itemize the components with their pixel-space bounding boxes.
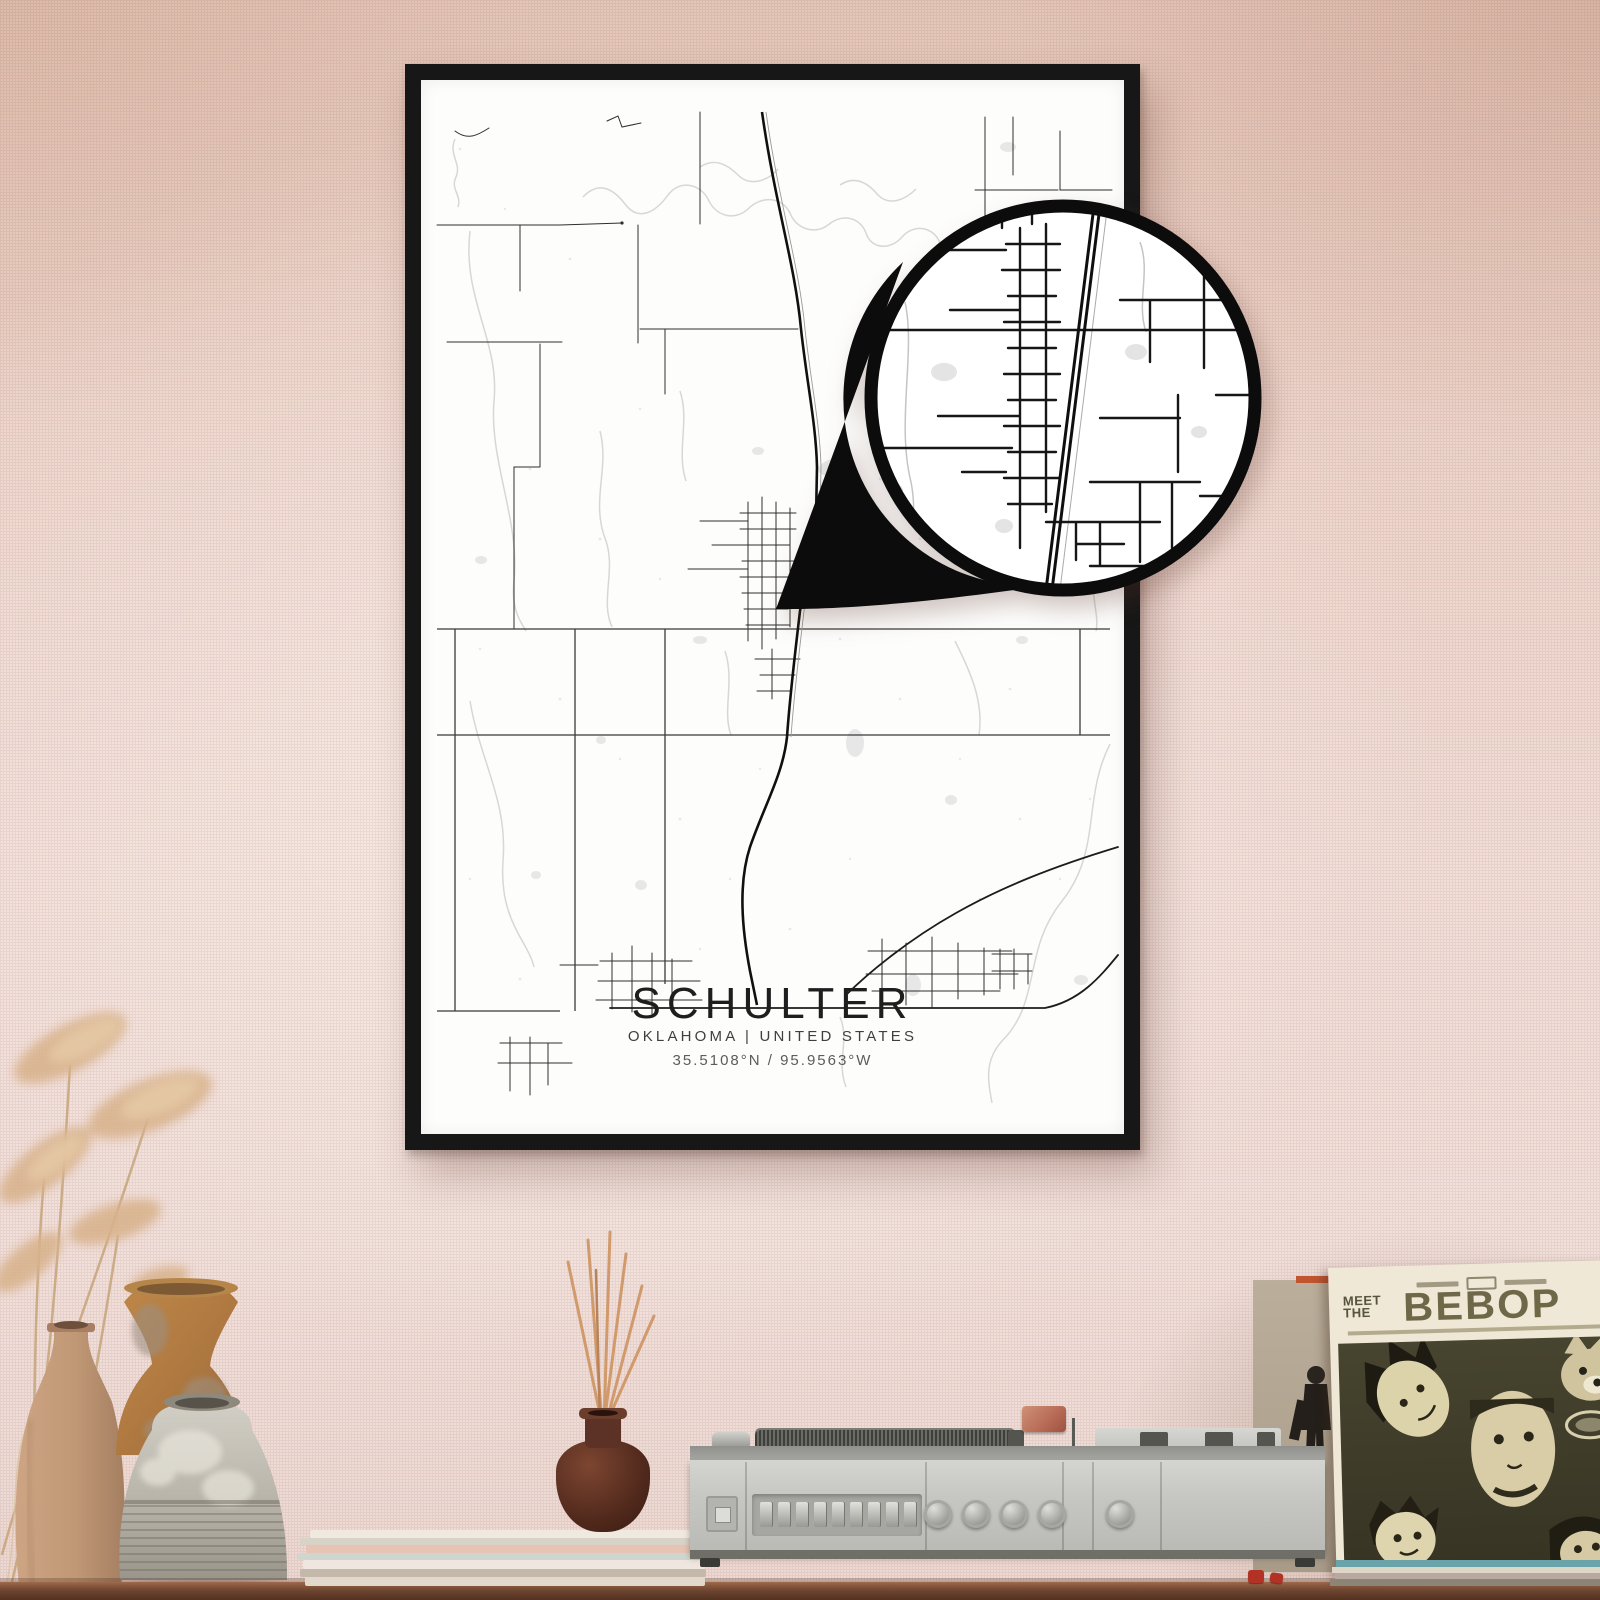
red-trinket: [1269, 1572, 1283, 1584]
player-knob: [962, 1500, 990, 1528]
magazine: [303, 1560, 705, 1569]
push-button: [850, 1502, 862, 1527]
bebop-title: BEBOP: [1403, 1282, 1563, 1331]
push-button: [832, 1502, 844, 1527]
player-button-strip: [752, 1494, 922, 1536]
bebop-faces-illustration: [1338, 1336, 1600, 1568]
record-edge: [1330, 1579, 1600, 1586]
magazine: [310, 1530, 690, 1538]
cabinet-seam: [1160, 1462, 1162, 1552]
poster-coordinates: 35.5108°N / 95.9563°W: [421, 1052, 1124, 1069]
bebop-pretitle: MEET THE: [1343, 1295, 1382, 1320]
push-button: [760, 1502, 772, 1527]
record-edge: [1336, 1560, 1600, 1567]
player-base: [690, 1550, 1325, 1559]
push-button: [814, 1502, 826, 1527]
magazine: [305, 1577, 705, 1586]
lighter: [1022, 1406, 1066, 1432]
diffuser-neck: [585, 1414, 621, 1448]
player-square-button: [706, 1496, 738, 1532]
red-trinket: [1248, 1570, 1264, 1583]
magazine: [300, 1569, 706, 1577]
diffuser-mouth: [588, 1410, 618, 1416]
push-button: [778, 1502, 790, 1527]
magazine: [298, 1553, 706, 1560]
cabinet-seam: [1092, 1462, 1094, 1552]
cabinet-seam: [745, 1462, 747, 1552]
bebop-record-sleeve: MEET THE BEBOP: [1328, 1260, 1600, 1576]
push-button: [904, 1502, 916, 1527]
bebop-cover-art: [1338, 1336, 1600, 1568]
still-life-graphic: [0, 960, 340, 1600]
player-knob: [1000, 1500, 1028, 1528]
push-button: [886, 1502, 898, 1527]
push-button: [868, 1502, 880, 1527]
magazine: [300, 1538, 695, 1545]
player-foot: [1295, 1558, 1315, 1567]
player-knob: [1106, 1500, 1134, 1528]
poster-title: SCHULTER: [421, 979, 1124, 1029]
poster-subtitle: OKLAHOMA | UNITED STATES: [421, 1028, 1124, 1045]
bebop-pretitle-line2: THE: [1343, 1307, 1381, 1320]
player-foot: [700, 1558, 720, 1567]
tan-vase: [16, 1321, 125, 1594]
magazine: [306, 1545, 704, 1553]
zoom-callout: [750, 180, 1270, 630]
push-button: [796, 1502, 808, 1527]
bebop-title-band: MEET THE BEBOP: [1336, 1268, 1600, 1334]
player-knob: [1038, 1500, 1066, 1528]
player-knob: [924, 1500, 952, 1528]
